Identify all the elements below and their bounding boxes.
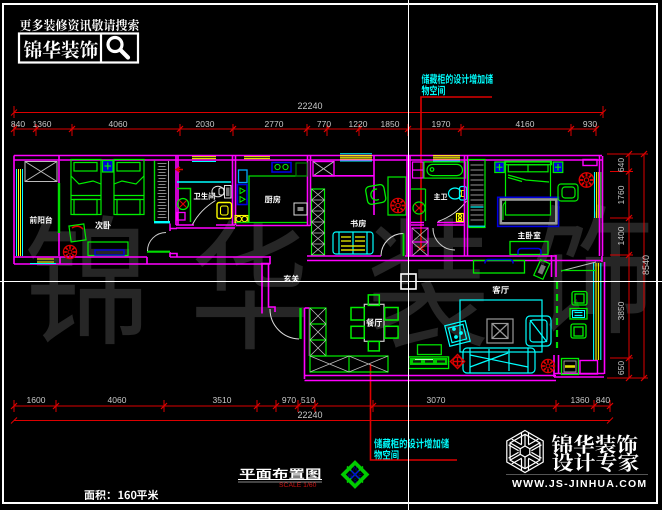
svg-text:4060: 4060 bbox=[108, 395, 127, 405]
svg-text:930: 930 bbox=[583, 119, 597, 129]
svg-text:22240: 22240 bbox=[297, 410, 322, 420]
svg-text:2770: 2770 bbox=[265, 119, 284, 129]
svg-text:1220: 1220 bbox=[349, 119, 368, 129]
svg-text:1600: 1600 bbox=[27, 395, 46, 405]
svg-text:4060: 4060 bbox=[109, 119, 128, 129]
svg-text:N: N bbox=[353, 467, 357, 473]
svg-text:1850: 1850 bbox=[381, 119, 400, 129]
svg-text:840: 840 bbox=[596, 395, 610, 405]
svg-text:W: W bbox=[348, 474, 353, 480]
svg-text:840: 840 bbox=[11, 119, 25, 129]
svg-text:1400: 1400 bbox=[616, 226, 626, 245]
svg-text:3510: 3510 bbox=[213, 395, 232, 405]
svg-text:4160: 4160 bbox=[516, 119, 535, 129]
svg-text:SCALE 1/60: SCALE 1/60 bbox=[279, 482, 317, 489]
svg-text:770: 770 bbox=[317, 119, 331, 129]
svg-text:3850: 3850 bbox=[616, 301, 626, 320]
svg-text:1760: 1760 bbox=[616, 185, 626, 204]
svg-text:2030: 2030 bbox=[196, 119, 215, 129]
svg-text:1360: 1360 bbox=[571, 395, 590, 405]
svg-text:8540: 8540 bbox=[641, 255, 651, 275]
svg-text:WWW.JS-JINHUA.COM: WWW.JS-JINHUA.COM bbox=[512, 478, 647, 490]
svg-text:640: 640 bbox=[616, 158, 626, 172]
svg-text:1360: 1360 bbox=[33, 119, 52, 129]
svg-text:22240: 22240 bbox=[297, 101, 322, 111]
svg-text:3070: 3070 bbox=[427, 395, 446, 405]
svg-text:970: 970 bbox=[282, 395, 296, 405]
svg-text:650: 650 bbox=[616, 361, 626, 375]
svg-text:1970: 1970 bbox=[432, 119, 451, 129]
svg-text:510: 510 bbox=[301, 395, 315, 405]
